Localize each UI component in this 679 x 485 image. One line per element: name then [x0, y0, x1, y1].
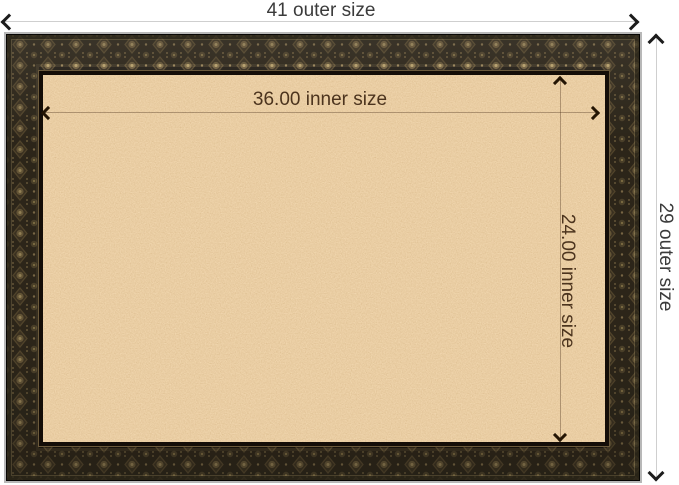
- frame-inner-lip: [38, 70, 610, 447]
- outer-width-label: 41 outer size: [267, 0, 376, 21]
- outer-height-label: 29 outer size: [655, 203, 676, 312]
- product-dimension-diagram: 41 outer size 29 outer size 36.00 inner …: [0, 0, 679, 485]
- chevron-left-icon: [1, 14, 18, 31]
- cork-surface: [43, 75, 605, 442]
- inner-width-dimension-line: [43, 112, 598, 113]
- inner-height-dimension-line: [560, 77, 561, 440]
- cork-texture: [43, 75, 605, 442]
- chevron-down-icon: [648, 465, 665, 482]
- outer-height-dimension-line: [656, 35, 657, 479]
- chevron-right-icon: [623, 14, 640, 31]
- chevron-up-icon: [648, 34, 665, 51]
- outer-width-dimension-line: [3, 21, 637, 22]
- inner-width-label: 36.00 inner size: [253, 89, 387, 110]
